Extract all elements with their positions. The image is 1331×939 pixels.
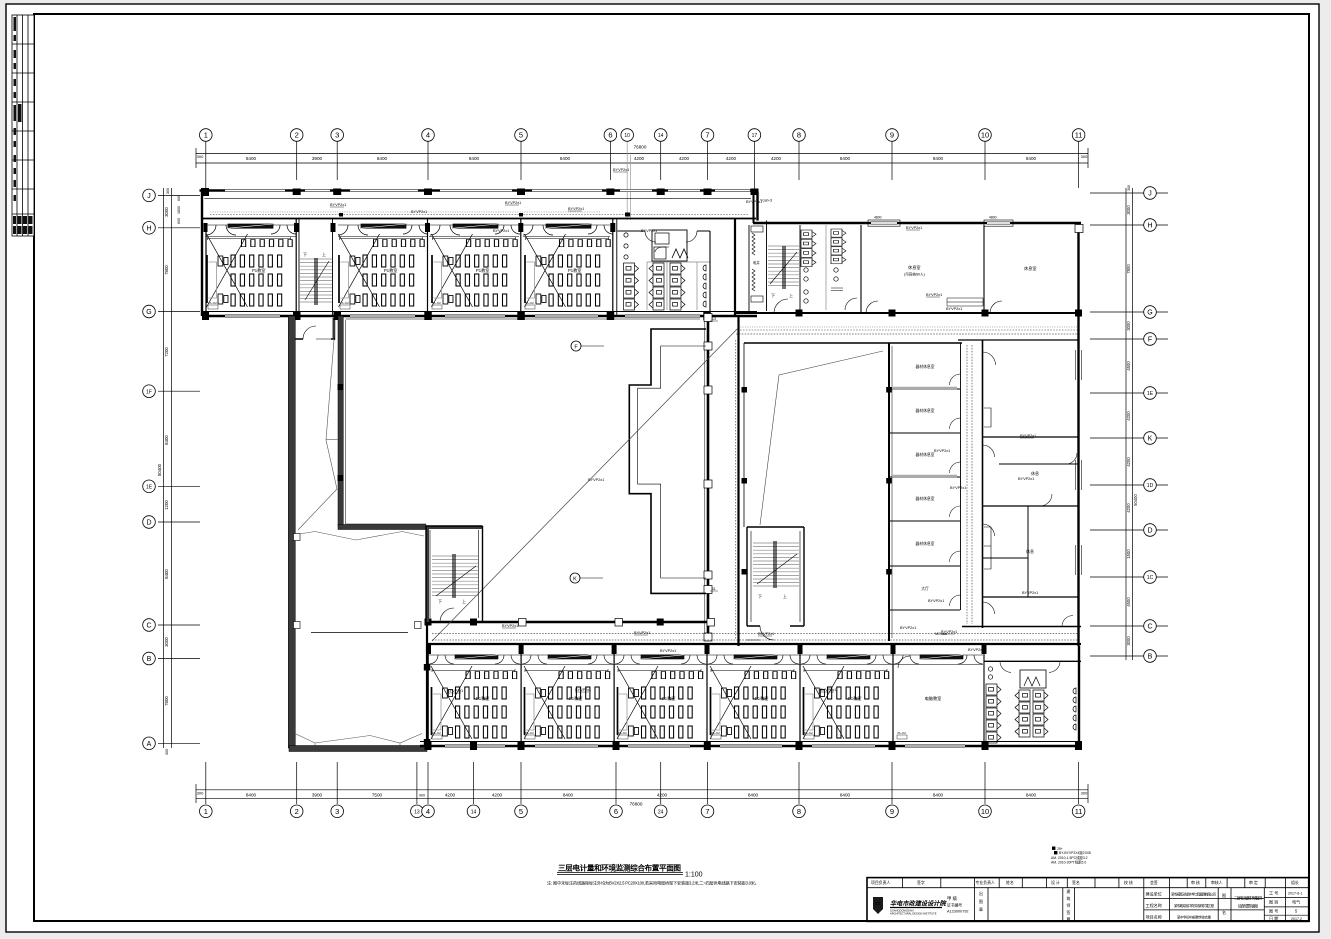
svg-text:A123000792: A123000792 <box>947 910 969 914</box>
svg-text:图 号: 图 号 <box>1269 908 1278 914</box>
svg-text:章: 章 <box>1067 917 1071 922</box>
svg-text:日 期: 日 期 <box>1269 915 1278 921</box>
svg-text:BY-BYVP2X4距2X08: BY-BYVP2X4距2X08 <box>1059 851 1091 855</box>
svg-text:4200: 4200 <box>726 156 737 161</box>
svg-text:3000: 3000 <box>164 207 169 217</box>
svg-text:3: 3 <box>335 807 339 816</box>
svg-text:76800: 76800 <box>634 145 647 150</box>
svg-text:PL-K2: PL-K2 <box>805 731 814 735</box>
svg-text:300: 300 <box>1127 185 1131 191</box>
svg-text:A: A <box>147 741 152 748</box>
svg-text:Ycab-3: Ycab-3 <box>760 199 772 203</box>
svg-text:J: J <box>147 193 151 200</box>
svg-text:4200: 4200 <box>657 792 668 797</box>
svg-text:4200: 4200 <box>1126 411 1131 421</box>
svg-text:休息: 休息 <box>1031 470 1039 476</box>
svg-text:电气: 电气 <box>1292 899 1300 905</box>
svg-text:上: 上 <box>322 251 326 257</box>
svg-text:4: 4 <box>426 807 430 816</box>
svg-text:BYVP2x1: BYVP2x1 <box>941 630 957 634</box>
svg-text:4: 4 <box>426 131 430 140</box>
svg-text:7800: 7800 <box>1126 264 1131 274</box>
svg-text:图 别: 图 别 <box>1269 899 1278 905</box>
svg-text:300: 300 <box>1081 791 1088 796</box>
svg-text:11: 11 <box>712 587 716 591</box>
svg-text:8400: 8400 <box>246 156 257 161</box>
svg-text:器材休息室: 器材休息室 <box>916 364 935 369</box>
svg-text:上: 上 <box>462 598 466 604</box>
svg-text:8400: 8400 <box>377 156 388 161</box>
svg-text:3900: 3900 <box>312 156 323 161</box>
svg-text:PL-K2: PL-K2 <box>712 731 721 735</box>
svg-text:出: 出 <box>979 891 983 896</box>
svg-text:8400: 8400 <box>933 156 944 161</box>
svg-text:师: 师 <box>1067 903 1071 908</box>
svg-text:300: 300 <box>165 749 169 755</box>
svg-text:1F: 1F <box>146 389 152 395</box>
svg-text:图: 图 <box>1222 892 1226 898</box>
svg-text:8400: 8400 <box>933 792 944 797</box>
svg-text:BYVP2x1: BYVP2x1 <box>926 293 942 297</box>
svg-text:签: 签 <box>1067 910 1071 915</box>
svg-text:1D: 1D <box>1147 483 1154 489</box>
svg-text:2017.2: 2017.2 <box>1291 917 1302 921</box>
svg-text:BYVP2x1: BYVP2x1 <box>1022 591 1038 595</box>
svg-text:2017-6-1: 2017-6-1 <box>1288 892 1302 896</box>
svg-text:筑: 筑 <box>1067 896 1071 901</box>
svg-text:PL-K2: PL-K2 <box>433 731 442 735</box>
svg-text:7500: 7500 <box>372 792 383 797</box>
svg-text:H: H <box>1147 223 1152 230</box>
svg-text:某中学初中部教学综合楼: 某中学初中部教学综合楼 <box>1177 915 1212 920</box>
svg-text:P1教室: P1教室 <box>569 695 583 702</box>
svg-text:BYVP2x1: BYVP2x1 <box>660 649 676 653</box>
svg-text:PL-K2: PL-K2 <box>898 731 907 735</box>
svg-text:审核人: 审核人 <box>1211 880 1223 885</box>
svg-text:3000: 3000 <box>164 637 169 647</box>
svg-text:1:100: 1:100 <box>685 872 703 879</box>
svg-text:BYVP2x1: BYVP2x1 <box>330 203 346 207</box>
svg-text:三层电计量和环境监测综合布置平面图: 三层电计量和环境监测综合布置平面图 <box>558 863 681 873</box>
svg-text:14: 14 <box>471 809 477 815</box>
svg-text:2: 2 <box>295 131 299 140</box>
svg-text:4800: 4800 <box>989 216 997 220</box>
svg-text:(可容纳50人): (可容纳50人) <box>904 272 925 277</box>
svg-text:4200: 4200 <box>492 792 503 797</box>
svg-text:器材休息室: 器材休息室 <box>916 496 935 501</box>
svg-text:BYVP2x1: BYVP2x1 <box>900 626 916 630</box>
svg-text:华电市政建设设计院: 华电市政建设设计院 <box>890 900 947 908</box>
svg-text:上: 上 <box>789 292 793 298</box>
svg-text:建设单位: 建设单位 <box>1146 891 1162 897</box>
svg-text:10: 10 <box>624 133 630 139</box>
svg-text:BYVP2x1: BYVP2x1 <box>411 210 427 214</box>
svg-text:11: 11 <box>1075 807 1083 816</box>
svg-text:1: 1 <box>204 131 208 140</box>
svg-text:13: 13 <box>712 317 716 321</box>
svg-text:D: D <box>1147 528 1152 535</box>
svg-text:三层电计量和环境监测: 三层电计量和环境监测 <box>1234 896 1262 901</box>
svg-text:8400: 8400 <box>164 435 169 445</box>
svg-text:SZ: SZ <box>875 901 881 906</box>
svg-text:13: 13 <box>414 809 420 815</box>
svg-text:G: G <box>146 309 151 316</box>
svg-text:章: 章 <box>979 907 983 912</box>
svg-text:8400: 8400 <box>1026 156 1037 161</box>
svg-text:H: H <box>146 225 151 232</box>
svg-text:PL-K2: PL-K2 <box>341 301 350 305</box>
svg-text:3: 3 <box>335 131 339 140</box>
svg-text:专业负责人: 专业负责人 <box>976 880 996 885</box>
svg-text:8400: 8400 <box>246 792 257 797</box>
svg-text:C: C <box>146 623 151 630</box>
svg-text:K: K <box>1148 436 1153 443</box>
svg-text:BYVP2x1: BYVP2x1 <box>575 688 591 692</box>
svg-text:8400: 8400 <box>563 792 574 797</box>
svg-text:50400: 50400 <box>1133 494 1138 506</box>
svg-text:10: 10 <box>981 131 989 140</box>
svg-text:设 计: 设 计 <box>1051 880 1060 885</box>
svg-text:4200: 4200 <box>1126 457 1131 467</box>
svg-text:P1教室: P1教室 <box>662 695 676 702</box>
svg-text:300: 300 <box>1081 154 1088 159</box>
svg-text:29+: 29+ <box>1057 847 1063 851</box>
svg-text:BYVP2x1: BYVP2x1 <box>568 207 584 211</box>
svg-text:BYVP2x1: BYVP2x1 <box>950 486 966 490</box>
svg-text:项目负责人: 项目负责人 <box>871 880 891 885</box>
svg-text:7800: 7800 <box>164 265 169 275</box>
svg-text:600: 600 <box>177 218 181 224</box>
svg-text:P1教室: P1教室 <box>755 695 769 702</box>
svg-text:8400: 8400 <box>748 792 759 797</box>
svg-text:F: F <box>1148 337 1152 344</box>
svg-text:BYVP2x1: BYVP2x1 <box>613 168 629 172</box>
svg-text:器材休息室: 器材休息室 <box>916 452 935 457</box>
svg-text:图: 图 <box>979 899 983 904</box>
svg-text:P1教室: P1教室 <box>476 695 490 702</box>
svg-text:1E: 1E <box>1147 391 1154 397</box>
svg-text:B: B <box>147 656 152 663</box>
svg-text:76800: 76800 <box>630 802 643 807</box>
svg-text:1800: 1800 <box>177 206 181 214</box>
svg-text:BYVP2x1: BYVP2x1 <box>928 599 944 603</box>
svg-text:大厅: 大厅 <box>921 586 929 591</box>
svg-text:9: 9 <box>890 807 894 816</box>
svg-text:休息室: 休息室 <box>1024 265 1037 272</box>
svg-text:8: 8 <box>797 131 801 140</box>
svg-text:1500: 1500 <box>1126 549 1131 559</box>
svg-text:AM. 2010-20PT线距5.0: AM. 2010-20PT线距5.0 <box>1051 860 1086 865</box>
svg-text:审 核: 审 核 <box>1191 880 1200 885</box>
svg-text:BYVP2x1: BYVP2x1 <box>588 478 604 482</box>
svg-text:P1教室: P1教室 <box>848 695 862 702</box>
svg-text:AM. 2010-1.5PC线距3.2: AM. 2010-1.5PC线距3.2 <box>1051 855 1088 860</box>
svg-text:电脑教室: 电脑教室 <box>925 695 942 702</box>
svg-text:1E: 1E <box>146 485 153 491</box>
svg-text:BYVP2x1: BYVP2x1 <box>1020 434 1036 438</box>
svg-text:BYVP2x1: BYVP2x1 <box>968 648 984 652</box>
svg-text:24: 24 <box>658 809 664 815</box>
svg-text:7200: 7200 <box>164 347 169 357</box>
svg-text:P1教室: P1教室 <box>568 267 582 274</box>
svg-text:建: 建 <box>1067 889 1071 894</box>
svg-text:BYVP2x1: BYVP2x1 <box>447 689 463 693</box>
svg-text:6: 6 <box>614 807 618 816</box>
svg-text:D: D <box>146 520 151 527</box>
svg-text:3000: 3000 <box>1126 205 1131 215</box>
svg-text:P1教室: P1教室 <box>476 267 490 274</box>
svg-text:G: G <box>1147 310 1152 317</box>
svg-text:证书编号: 证书编号 <box>947 903 962 908</box>
svg-text:BYVP2x1: BYVP2x1 <box>1018 477 1034 481</box>
svg-text:甲 级: 甲 级 <box>947 895 958 902</box>
svg-text:5: 5 <box>519 807 523 816</box>
svg-text:4200: 4200 <box>771 156 782 161</box>
svg-text:300: 300 <box>197 154 204 159</box>
svg-text:10: 10 <box>981 807 989 816</box>
svg-text:会签: 会签 <box>1150 880 1158 885</box>
svg-text:8400: 8400 <box>840 792 851 797</box>
svg-text:校 核: 校 核 <box>1124 880 1133 885</box>
svg-text:PL-K2: PL-K2 <box>526 301 535 305</box>
svg-text:工 号: 工 号 <box>1269 890 1278 896</box>
svg-text:综合布置平面图: 综合布置平面图 <box>1238 904 1258 909</box>
svg-text:4200: 4200 <box>679 156 690 161</box>
svg-text:BYVP2x1: BYVP2x1 <box>946 307 962 311</box>
svg-text:K: K <box>573 576 577 582</box>
svg-text:2: 2 <box>295 807 299 816</box>
svg-text:7800: 7800 <box>164 696 169 706</box>
svg-text:3000: 3000 <box>1126 636 1131 646</box>
svg-text:17: 17 <box>752 133 758 139</box>
svg-text:器材休息室: 器材休息室 <box>916 408 935 413</box>
svg-text:组长: 组长 <box>1291 880 1299 885</box>
svg-text:下: 下 <box>758 594 762 599</box>
svg-text:PL-K2: PL-K2 <box>619 731 628 735</box>
svg-text:1200: 1200 <box>164 500 169 510</box>
svg-text:4800: 4800 <box>874 216 882 220</box>
svg-text:4200: 4200 <box>1126 503 1131 513</box>
svg-text:8400: 8400 <box>840 156 851 161</box>
svg-text:ARCHITECTURAL DESIGN INSTITUTE: ARCHITECTURAL DESIGN INSTITUTE <box>890 912 937 916</box>
svg-text:下: 下 <box>771 293 775 298</box>
svg-text:5: 5 <box>519 131 523 140</box>
svg-text:某市高新区实验中学工程管理有限公司: 某市高新区实验中学工程管理有限公司 <box>1171 892 1216 897</box>
svg-text:50400: 50400 <box>157 463 162 476</box>
svg-text:8400: 8400 <box>1026 792 1037 797</box>
svg-text:300: 300 <box>166 188 170 194</box>
svg-text:4200: 4200 <box>445 792 456 797</box>
svg-text:某市某实验中学初中部改扩建工程: 某市某实验中学初中部改扩建工程 <box>1174 903 1215 908</box>
svg-text:名: 名 <box>1222 909 1226 915</box>
svg-text:600: 600 <box>177 195 181 201</box>
svg-text:11: 11 <box>1075 131 1083 140</box>
svg-text:8400: 8400 <box>164 569 169 579</box>
svg-text:下: 下 <box>438 599 442 604</box>
svg-text:9: 9 <box>890 131 894 140</box>
svg-text:工程名称: 工程名称 <box>1146 902 1162 908</box>
svg-text:1: 1 <box>204 807 208 816</box>
svg-text:BYVP2x1: BYVP2x1 <box>820 688 836 692</box>
svg-text:签名: 签名 <box>1072 880 1080 885</box>
svg-text:BYVP2x1: BYVP2x1 <box>906 226 922 230</box>
svg-text:BYVP2x1: BYVP2x1 <box>934 449 950 453</box>
svg-text:4500: 4500 <box>1126 597 1131 607</box>
svg-text:4500: 4500 <box>1126 361 1131 371</box>
svg-text:签字: 签字 <box>917 880 925 885</box>
svg-text:器材休息室: 器材休息室 <box>916 541 935 546</box>
svg-text:PL-K2: PL-K2 <box>209 301 218 305</box>
svg-text:8: 8 <box>797 807 801 816</box>
svg-text:P1教室: P1教室 <box>252 267 266 274</box>
svg-text:4200: 4200 <box>634 156 645 161</box>
svg-text:14: 14 <box>658 133 664 139</box>
svg-text:B: B <box>1148 654 1153 661</box>
svg-text:900: 900 <box>419 793 425 797</box>
svg-text:P1教室: P1教室 <box>384 267 398 274</box>
svg-text:注: 图中未标注的线路除标注外均为BV2X2.5 PC20X: 注: 图中未标注的线路除标注外均为BV2X2.5 PC20X100,若采用电缆桥… <box>547 880 759 887</box>
svg-text:3000: 3000 <box>1126 321 1131 331</box>
svg-text:电井: 电井 <box>753 260 760 265</box>
svg-text:下: 下 <box>303 252 307 257</box>
svg-text:C: C <box>1147 624 1152 631</box>
svg-text:3900: 3900 <box>312 792 323 797</box>
svg-text:审 定: 审 定 <box>1249 880 1258 885</box>
svg-text:BYVP2x1: BYVP2x1 <box>493 229 509 233</box>
svg-text:7: 7 <box>705 131 709 140</box>
svg-text:BYVP2x1: BYVP2x1 <box>502 624 518 628</box>
svg-text:PL-K2: PL-K2 <box>526 731 535 735</box>
svg-text:休息室: 休息室 <box>908 264 921 271</box>
svg-text:8400: 8400 <box>469 156 480 161</box>
svg-text:休息: 休息 <box>1026 548 1034 554</box>
svg-text:上: 上 <box>783 593 787 599</box>
svg-text:1C: 1C <box>1147 575 1154 581</box>
svg-text:6: 6 <box>608 131 612 140</box>
svg-text:项目名称: 项目名称 <box>1146 914 1162 920</box>
svg-text:7: 7 <box>705 807 709 816</box>
svg-text:BYVP2x1: BYVP2x1 <box>641 229 657 233</box>
svg-text:PL-K2: PL-K2 <box>433 301 442 305</box>
svg-text:J: J <box>1148 191 1152 198</box>
svg-text:BYVP2x1: BYVP2x1 <box>505 201 521 205</box>
svg-text:300: 300 <box>197 791 204 796</box>
svg-text:BYVP2x1: BYVP2x1 <box>634 631 650 635</box>
svg-text:BYVP2x1: BYVP2x1 <box>758 632 774 636</box>
svg-text:姓名: 姓名 <box>1006 880 1014 885</box>
svg-text:8400: 8400 <box>560 156 571 161</box>
